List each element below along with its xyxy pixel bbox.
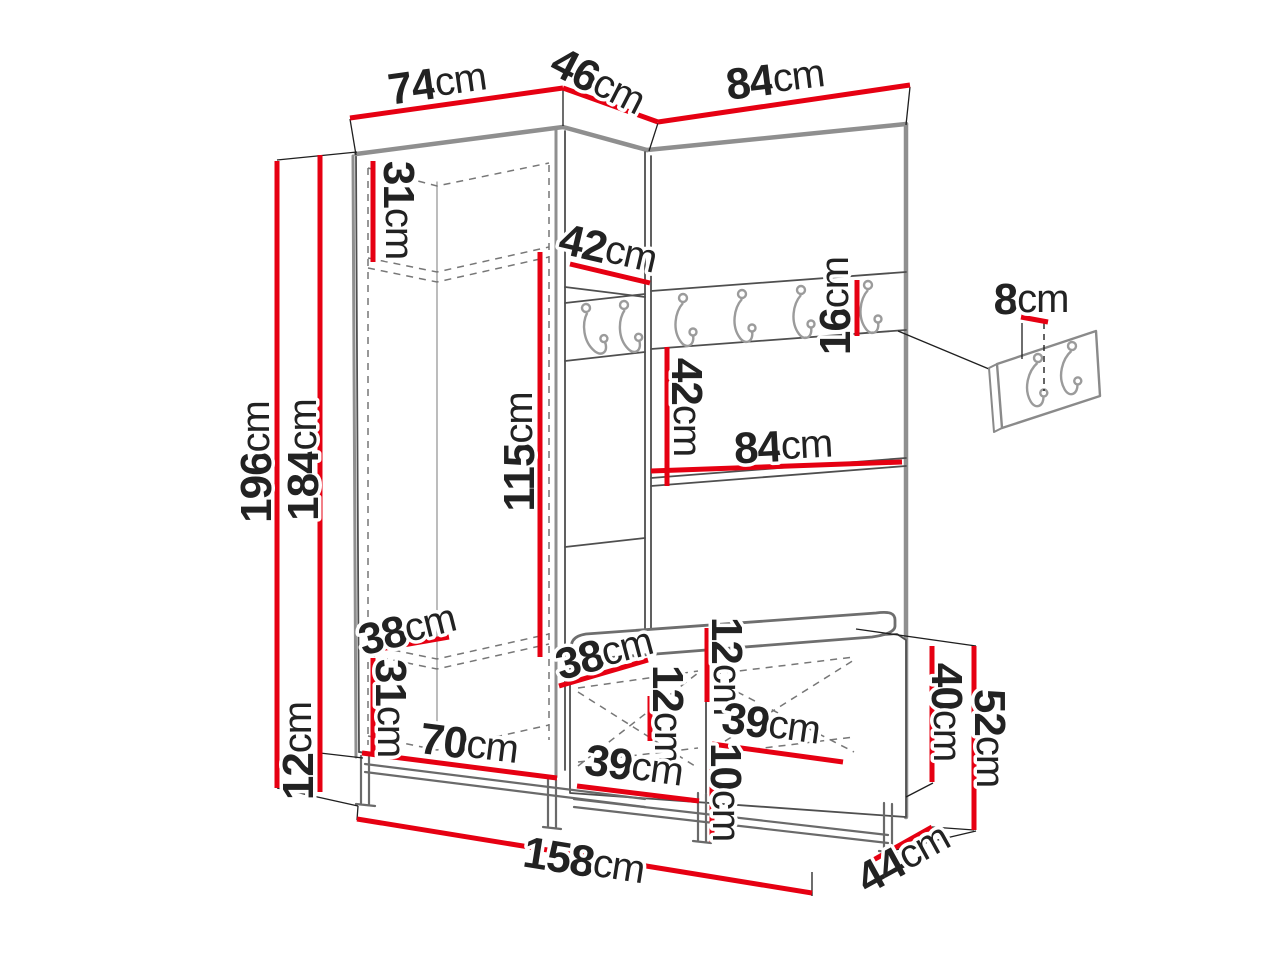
- dim-label-hang-115: 115cm: [495, 392, 544, 511]
- dim-label-depth-44: 44cm: [848, 813, 958, 904]
- hook-panel-face: [997, 331, 1100, 428]
- dim-label-top-74: 74cm: [385, 52, 489, 114]
- dim-label-panel-gap-42: 42cm: [663, 358, 712, 456]
- furniture-dimension-diagram: 74cm 46cm 84cm 196cm 184cm 12cm 31cm 115…: [0, 0, 1280, 960]
- dim-label-total-width-158: 158cm: [520, 827, 648, 894]
- extension-line: [277, 152, 357, 160]
- diagram-canvas: 74cm 46cm 84cm 196cm 184cm 12cm 31cm 115…: [0, 0, 1280, 960]
- dim-label-ward-bottom-31: 31cm: [367, 659, 416, 757]
- dim-label-plinth-12: 12cm: [274, 702, 323, 800]
- wall-hook-panel-detail: [898, 323, 1100, 432]
- dim-label-top-46: 46cm: [543, 37, 653, 125]
- dim-label-bench-52: 52cm: [966, 689, 1015, 787]
- corner-shelf-edge: [565, 287, 645, 297]
- dim-label-shelf-31: 31cm: [375, 161, 424, 259]
- detail-leader-line: [898, 331, 989, 369]
- dim-label-bench-10: 10cm: [702, 743, 751, 841]
- dim-label-hook-panel-8: 8cm: [994, 275, 1069, 324]
- corner-face-seams: [565, 294, 645, 547]
- wardrobe-left-edge: [353, 156, 356, 757]
- dim-label-height-196: 196cm: [232, 401, 281, 523]
- dim-label-bench-40: 40cm: [923, 663, 972, 761]
- coat-hook-icon: [616, 299, 644, 353]
- dim-label-rail-16: 16cm: [811, 257, 860, 355]
- corner-top-edge: [563, 127, 647, 150]
- extension-line: [906, 783, 974, 830]
- dim-label-height-184: 184cm: [279, 399, 328, 521]
- dim-label-panel-width-84: 84cm: [733, 419, 834, 473]
- coat-hook-icon: [578, 301, 611, 357]
